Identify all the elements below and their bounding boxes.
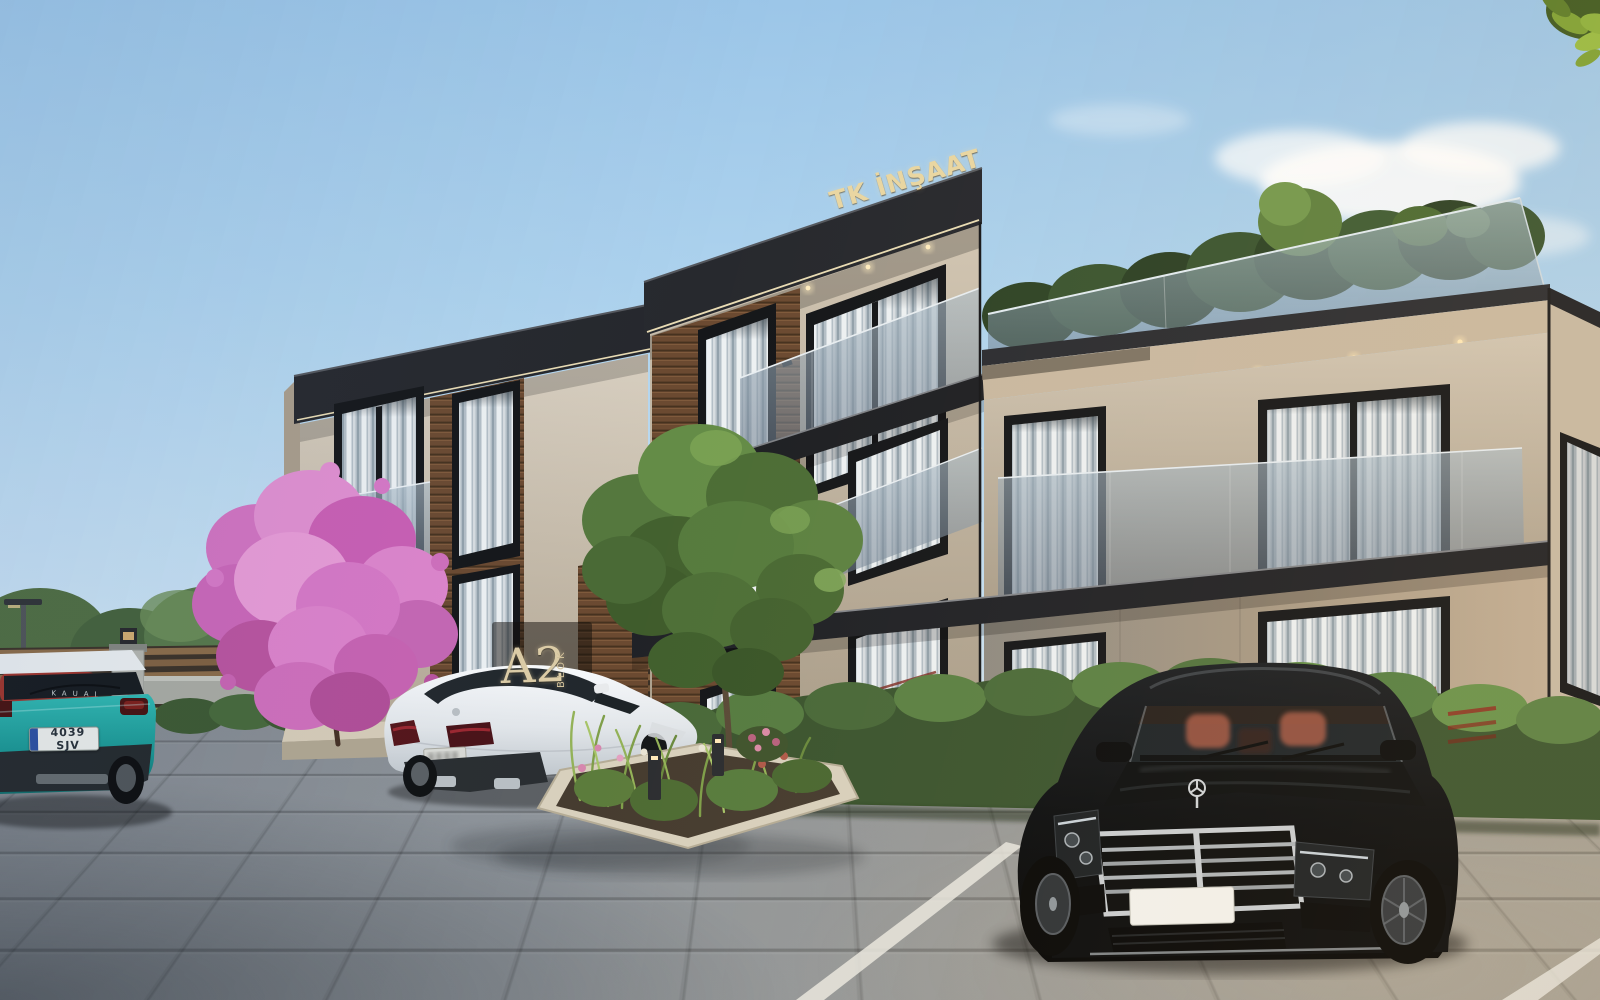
window [1560, 432, 1600, 706]
bollard-light [712, 734, 724, 776]
coupe-badge [452, 708, 460, 716]
window [452, 380, 520, 570]
bollard-light [648, 750, 661, 800]
corner-foliage [1537, 0, 1600, 70]
exhaust-tip [494, 778, 520, 789]
scene-graphics [0, 0, 1600, 1000]
sedan-windshield [1130, 706, 1402, 762]
sedan-plate [1130, 887, 1235, 926]
suv-roof [0, 650, 146, 674]
render-canvas: TK İNŞAAT A2 BLOK KAUAI 4039 SJV [0, 0, 1600, 1000]
flowering-shrub [736, 726, 788, 762]
